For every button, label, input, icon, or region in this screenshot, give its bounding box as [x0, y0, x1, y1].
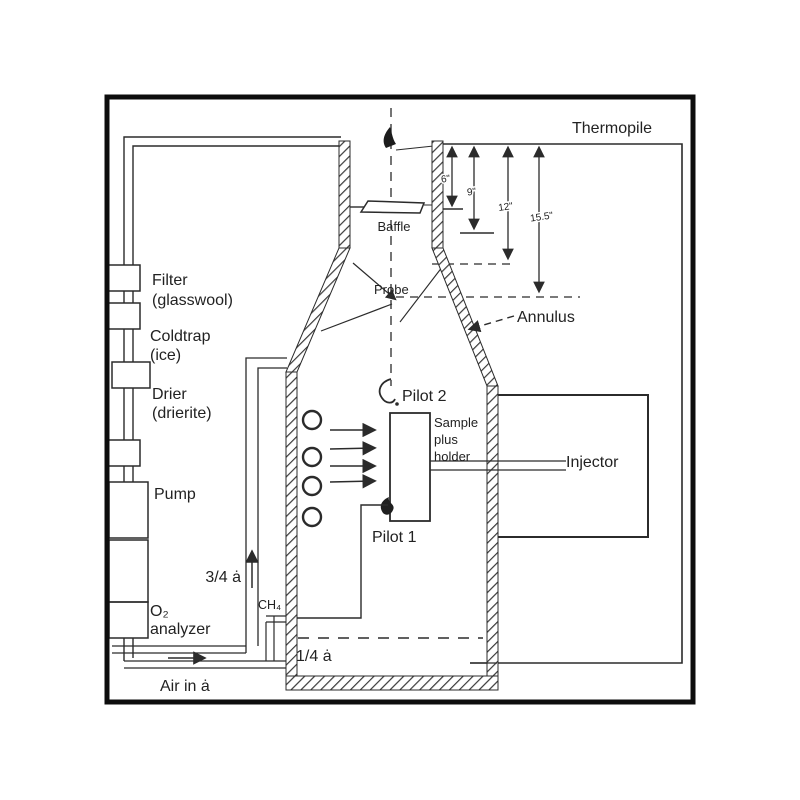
pipe-34-label: 3/4 ȧ	[205, 569, 241, 586]
sample-holder-label-1: Sample	[434, 415, 478, 430]
left-chamber-wall	[286, 372, 297, 676]
right-neck-wall	[432, 141, 443, 248]
left-neck-wall	[339, 141, 350, 248]
right-chamber-wall	[487, 386, 498, 676]
coldtrap-label-2: (ice)	[150, 347, 181, 364]
drier-label-2: (drierite)	[152, 405, 212, 422]
baffle-plate	[361, 201, 424, 213]
pilot1-label: Pilot 1	[372, 529, 417, 546]
pilot2-label: Pilot 2	[402, 388, 447, 405]
pipe-14-label: 1/4 ȧ	[296, 648, 332, 665]
o2-label-2: analyzer	[150, 621, 211, 638]
sample-holder-label-2: plus	[434, 432, 458, 447]
dim-12in-label: 12"	[498, 201, 515, 214]
injector-label: Injector	[566, 454, 619, 471]
annulus-label: Annulus	[517, 309, 575, 326]
scanned-diagram-page: Thermopile Baffle Probe Annulus Pilot 2 …	[0, 0, 800, 800]
air-in-label: Air in ȧ	[160, 678, 210, 695]
ch4-label: CH₄	[258, 598, 281, 612]
chamber-floor	[286, 676, 498, 690]
pump-label: Pump	[154, 486, 196, 503]
thermopile-label: Thermopile	[572, 120, 652, 137]
combustion-chamber-schematic: Thermopile Baffle Probe Annulus Pilot 2 …	[0, 0, 800, 800]
drier-label-1: Drier	[152, 386, 187, 403]
sample-holder-label-3: holder	[434, 449, 471, 464]
o2-label-1: O₂	[150, 603, 169, 620]
filter-label-2: (glasswool)	[152, 292, 233, 309]
probe-label: Probe	[374, 282, 409, 297]
baffle-label: Baffle	[377, 219, 410, 234]
coldtrap-label-1: Coldtrap	[150, 328, 211, 345]
filter-label-1: Filter	[152, 272, 188, 289]
